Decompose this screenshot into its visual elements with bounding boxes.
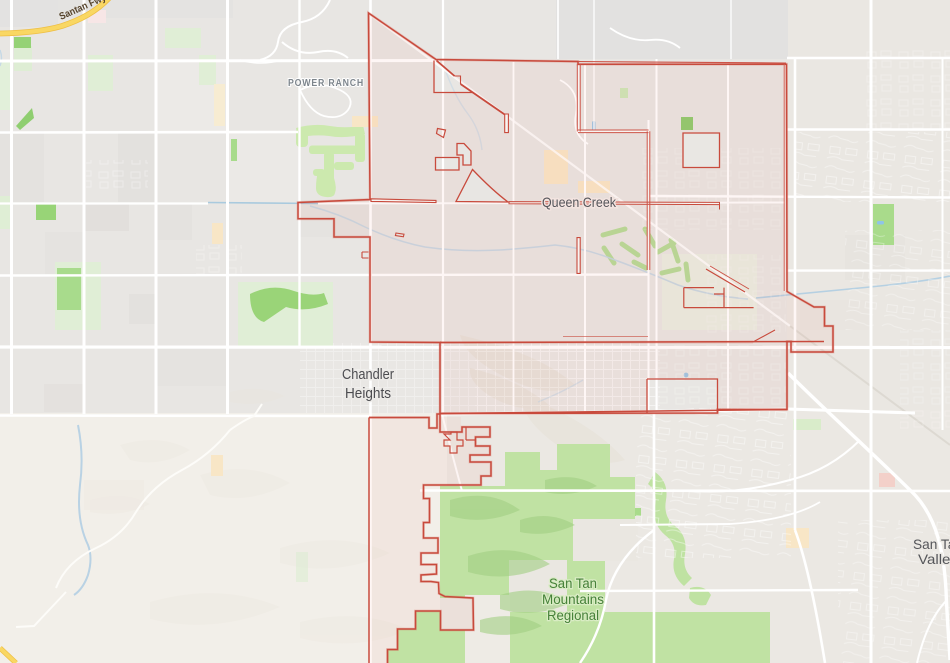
svg-text:POWER RANCH: POWER RANCH <box>288 78 364 89</box>
svg-text:San Tan: San Tan <box>913 536 950 552</box>
svg-text:Regional: Regional <box>547 608 599 623</box>
svg-text:Valley: Valley <box>918 551 950 567</box>
svg-text:Queen Creek: Queen Creek <box>542 194 617 210</box>
svg-text:Heights: Heights <box>345 385 391 402</box>
svg-text:San Tan: San Tan <box>549 576 597 591</box>
svg-text:Mountains: Mountains <box>542 592 604 607</box>
svg-text:Chandler: Chandler <box>342 366 394 383</box>
